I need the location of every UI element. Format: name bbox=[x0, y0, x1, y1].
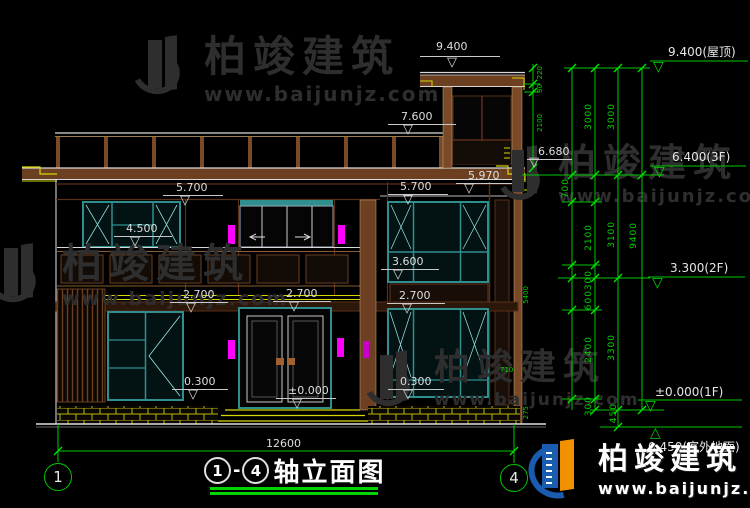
dim-3100: 3100 bbox=[607, 221, 617, 248]
title-underline-2 bbox=[210, 492, 378, 495]
level-roof: 9.400(屋顶) bbox=[668, 43, 736, 60]
elev-triangle: ▽ bbox=[289, 302, 299, 312]
title-axis-end: 4 bbox=[242, 457, 269, 484]
elev-triangle: ▽ bbox=[180, 196, 190, 206]
level-1f: ±0.000(1F) bbox=[655, 385, 723, 399]
dimension-overlay bbox=[0, 0, 750, 508]
dim-2400: 2400 bbox=[584, 336, 594, 363]
axis-bubble-1: 1 bbox=[44, 463, 72, 491]
dim-2100-bulkhead: 2100 bbox=[536, 114, 544, 132]
axis-number: 4 bbox=[509, 469, 519, 487]
title-underline-1 bbox=[210, 487, 378, 490]
elev-triangle: ▽ bbox=[403, 195, 413, 205]
elev-triangle: ▽ bbox=[403, 390, 413, 400]
brand-url: www.baijunjz.com bbox=[598, 479, 750, 498]
dim-450: 450 bbox=[609, 403, 619, 423]
axis-bubble-4: 4 bbox=[500, 464, 528, 492]
level-triangle: ▽ bbox=[645, 401, 656, 412]
brand-logo-icon bbox=[528, 440, 590, 502]
dim-3000-a: 3000 bbox=[584, 103, 594, 130]
dim-9400: 9400 bbox=[629, 222, 639, 249]
level-3f: 6.400(3F) bbox=[672, 150, 730, 164]
elev-triangle: ▽ bbox=[402, 304, 412, 314]
dim-700: 700 bbox=[561, 178, 571, 198]
dim-2100: 2100 bbox=[584, 224, 594, 251]
dim-710: 710 bbox=[500, 366, 513, 374]
elev-triangle: ▽ bbox=[188, 390, 198, 400]
dim-220: 220 bbox=[536, 66, 544, 79]
dim-300-b: 300 bbox=[584, 396, 594, 416]
dim-30: 30 bbox=[536, 84, 544, 93]
title-dash: - bbox=[233, 460, 240, 481]
elev-triangle: ▽ bbox=[464, 184, 474, 194]
drawing-title: 1 - 4 轴立面图 bbox=[204, 452, 386, 489]
elev-triangle: ▽ bbox=[403, 125, 413, 135]
level-triangle: ▽ bbox=[654, 167, 665, 178]
elev-triangle: ▽ bbox=[130, 237, 140, 247]
brand-logo: 柏竣建筑 www.baijunjz.com bbox=[528, 440, 750, 502]
elev-9400: 9.400 bbox=[436, 40, 468, 53]
brand-name: 柏竣建筑 bbox=[598, 445, 750, 475]
dim-3000-b: 3000 bbox=[607, 103, 617, 130]
title-axis-start: 1 bbox=[204, 457, 231, 484]
dim-12600: 12600 bbox=[266, 437, 301, 450]
axis-number: 1 bbox=[53, 468, 63, 486]
elev-triangle: ▽ bbox=[186, 303, 196, 313]
dim-300-a: 300 bbox=[584, 270, 594, 290]
elev-triangle: ▽ bbox=[393, 270, 403, 280]
level-triangle: ▽ bbox=[652, 278, 663, 289]
cad-elevation-sheet: 柏竣建筑 www.baijunjz.com 柏竣建筑 www.baijunjz.… bbox=[0, 0, 750, 508]
dim-5400: 5400 bbox=[522, 286, 530, 304]
dim-3300: 3300 bbox=[607, 334, 617, 361]
elev-triangle: ▽ bbox=[447, 58, 457, 68]
dim-600: 600 bbox=[584, 290, 594, 310]
elev-triangle: ▽ bbox=[292, 399, 302, 409]
title-text: 轴立面图 bbox=[273, 452, 385, 489]
dim-275: 275 bbox=[522, 406, 530, 419]
elev-6680: 6.680 bbox=[538, 145, 570, 158]
level-triangle: ▽ bbox=[653, 62, 664, 73]
elev-triangle: ▽ bbox=[529, 158, 539, 168]
level-2f: 3.300(2F) bbox=[670, 261, 728, 275]
